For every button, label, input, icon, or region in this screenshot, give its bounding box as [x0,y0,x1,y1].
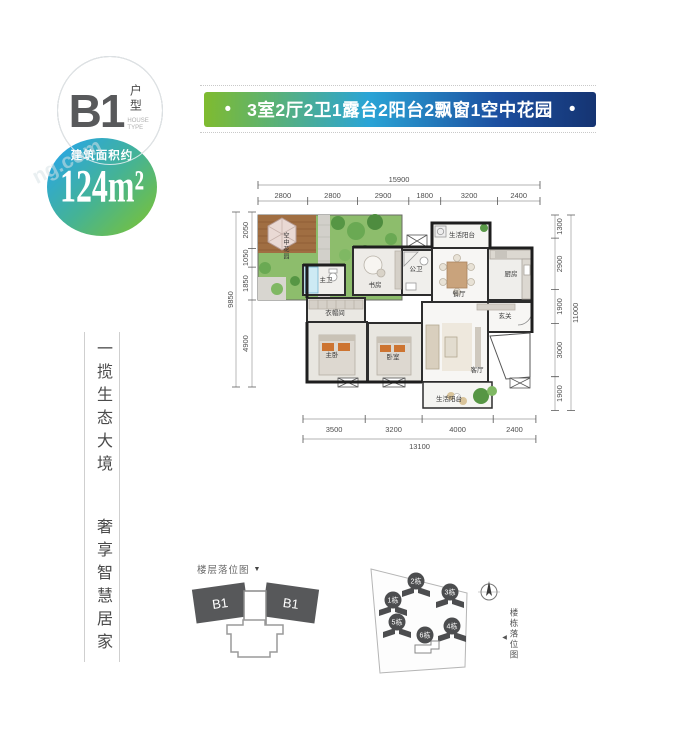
svg-text:2900: 2900 [555,256,564,273]
svg-text:4000: 4000 [449,425,466,434]
svg-text:1900: 1900 [555,298,564,315]
dotted-divider-bottom [200,132,596,133]
svg-text:3200: 3200 [385,425,402,434]
unit-wing-right: B1 [262,582,319,623]
house-type-label-en: HOUSE TYPE [127,118,151,132]
floor-position-diagram: B1 B1 [175,555,335,690]
svg-text:B1: B1 [282,595,300,612]
svg-text:公卫: 公卫 [410,265,424,273]
svg-text:3栋: 3栋 [445,588,456,597]
svg-text:3000: 3000 [555,342,564,359]
bullet-dot: • [569,105,576,115]
svg-text:15900: 15900 [389,175,410,184]
svg-text:1850: 1850 [241,275,250,292]
svg-text:书房: 书房 [369,280,382,289]
svg-text:卧室: 卧室 [387,352,401,361]
svg-text:9850: 9850 [226,291,235,308]
tagline-line1: 一揽生态大境 [94,340,111,478]
vertical-tagline: 一揽生态大境 奢享智慧居家 [84,332,120,662]
svg-text:1栋: 1栋 [388,596,399,605]
svg-text:6栋: 6栋 [420,631,431,640]
unit-wing-left: B1 [192,582,249,623]
open-terrace [490,333,530,379]
svg-text:生活阳台: 生活阳台 [436,394,462,403]
svg-text:1900: 1900 [555,385,564,402]
svg-text:4栋: 4栋 [447,622,458,631]
svg-text:5栋: 5栋 [392,618,403,627]
house-type-code: B1 [69,84,124,138]
svg-text:1800: 1800 [416,191,433,200]
svg-text:2800: 2800 [274,191,291,200]
svg-text:11000: 11000 [571,303,580,323]
floorplan-poster: ng.com B1 户型 HOUSE TYPE 建筑面积约 124m² • 3室… [0,0,682,734]
svg-text:B1: B1 [211,595,229,612]
svg-text:2900: 2900 [375,191,392,200]
svg-text:衣帽间: 衣帽间 [325,308,345,317]
dotted-divider-top [200,85,596,86]
svg-text:1050: 1050 [241,249,250,266]
site-position-caption: 楼栋落位图 ◀ [501,608,520,661]
svg-text:2050: 2050 [241,222,250,239]
lower-footprint-outline [227,620,283,657]
svg-text:2400: 2400 [506,425,523,434]
svg-text:3200: 3200 [461,191,478,200]
svg-text:客厅: 客厅 [471,365,485,374]
feature-banner-text: 3室2厅2卫1露台2阳台2飘窗1空中花园 [247,97,553,122]
svg-text:4900: 4900 [241,335,250,352]
svg-text:厨房: 厨房 [505,269,518,278]
feature-banner: • 3室2厅2卫1露台2阳台2飘窗1空中花园 • [204,92,596,127]
svg-text:1300: 1300 [555,218,564,235]
svg-text:主卧: 主卧 [326,350,340,359]
bullet-dot: • [225,105,232,115]
floor-plan: 主卫 书房 公卫 生活阳台 餐厅 厨房 玄关 衣帽间 主卧 卧室 客厅 生活阳台… [225,165,580,460]
svg-text:2800: 2800 [324,191,341,200]
sky-garden-label: 空中花园 [281,232,290,260]
svg-text:主卫: 主卫 [320,275,334,284]
svg-text:生活阳台: 生活阳台 [449,230,475,239]
svg-text:3500: 3500 [326,425,343,434]
svg-text:13100: 13100 [409,442,430,451]
house-type-label-cn: 户型 [127,84,144,114]
svg-text:2400: 2400 [510,191,527,200]
compass-icon [478,581,500,600]
svg-text:餐厅: 餐厅 [453,289,467,298]
svg-text:玄关: 玄关 [499,311,513,320]
triangle-left-icon: ◀ [501,634,508,641]
tagline-line2: 奢享智慧居家 [94,518,111,656]
svg-text:2栋: 2栋 [411,577,422,586]
